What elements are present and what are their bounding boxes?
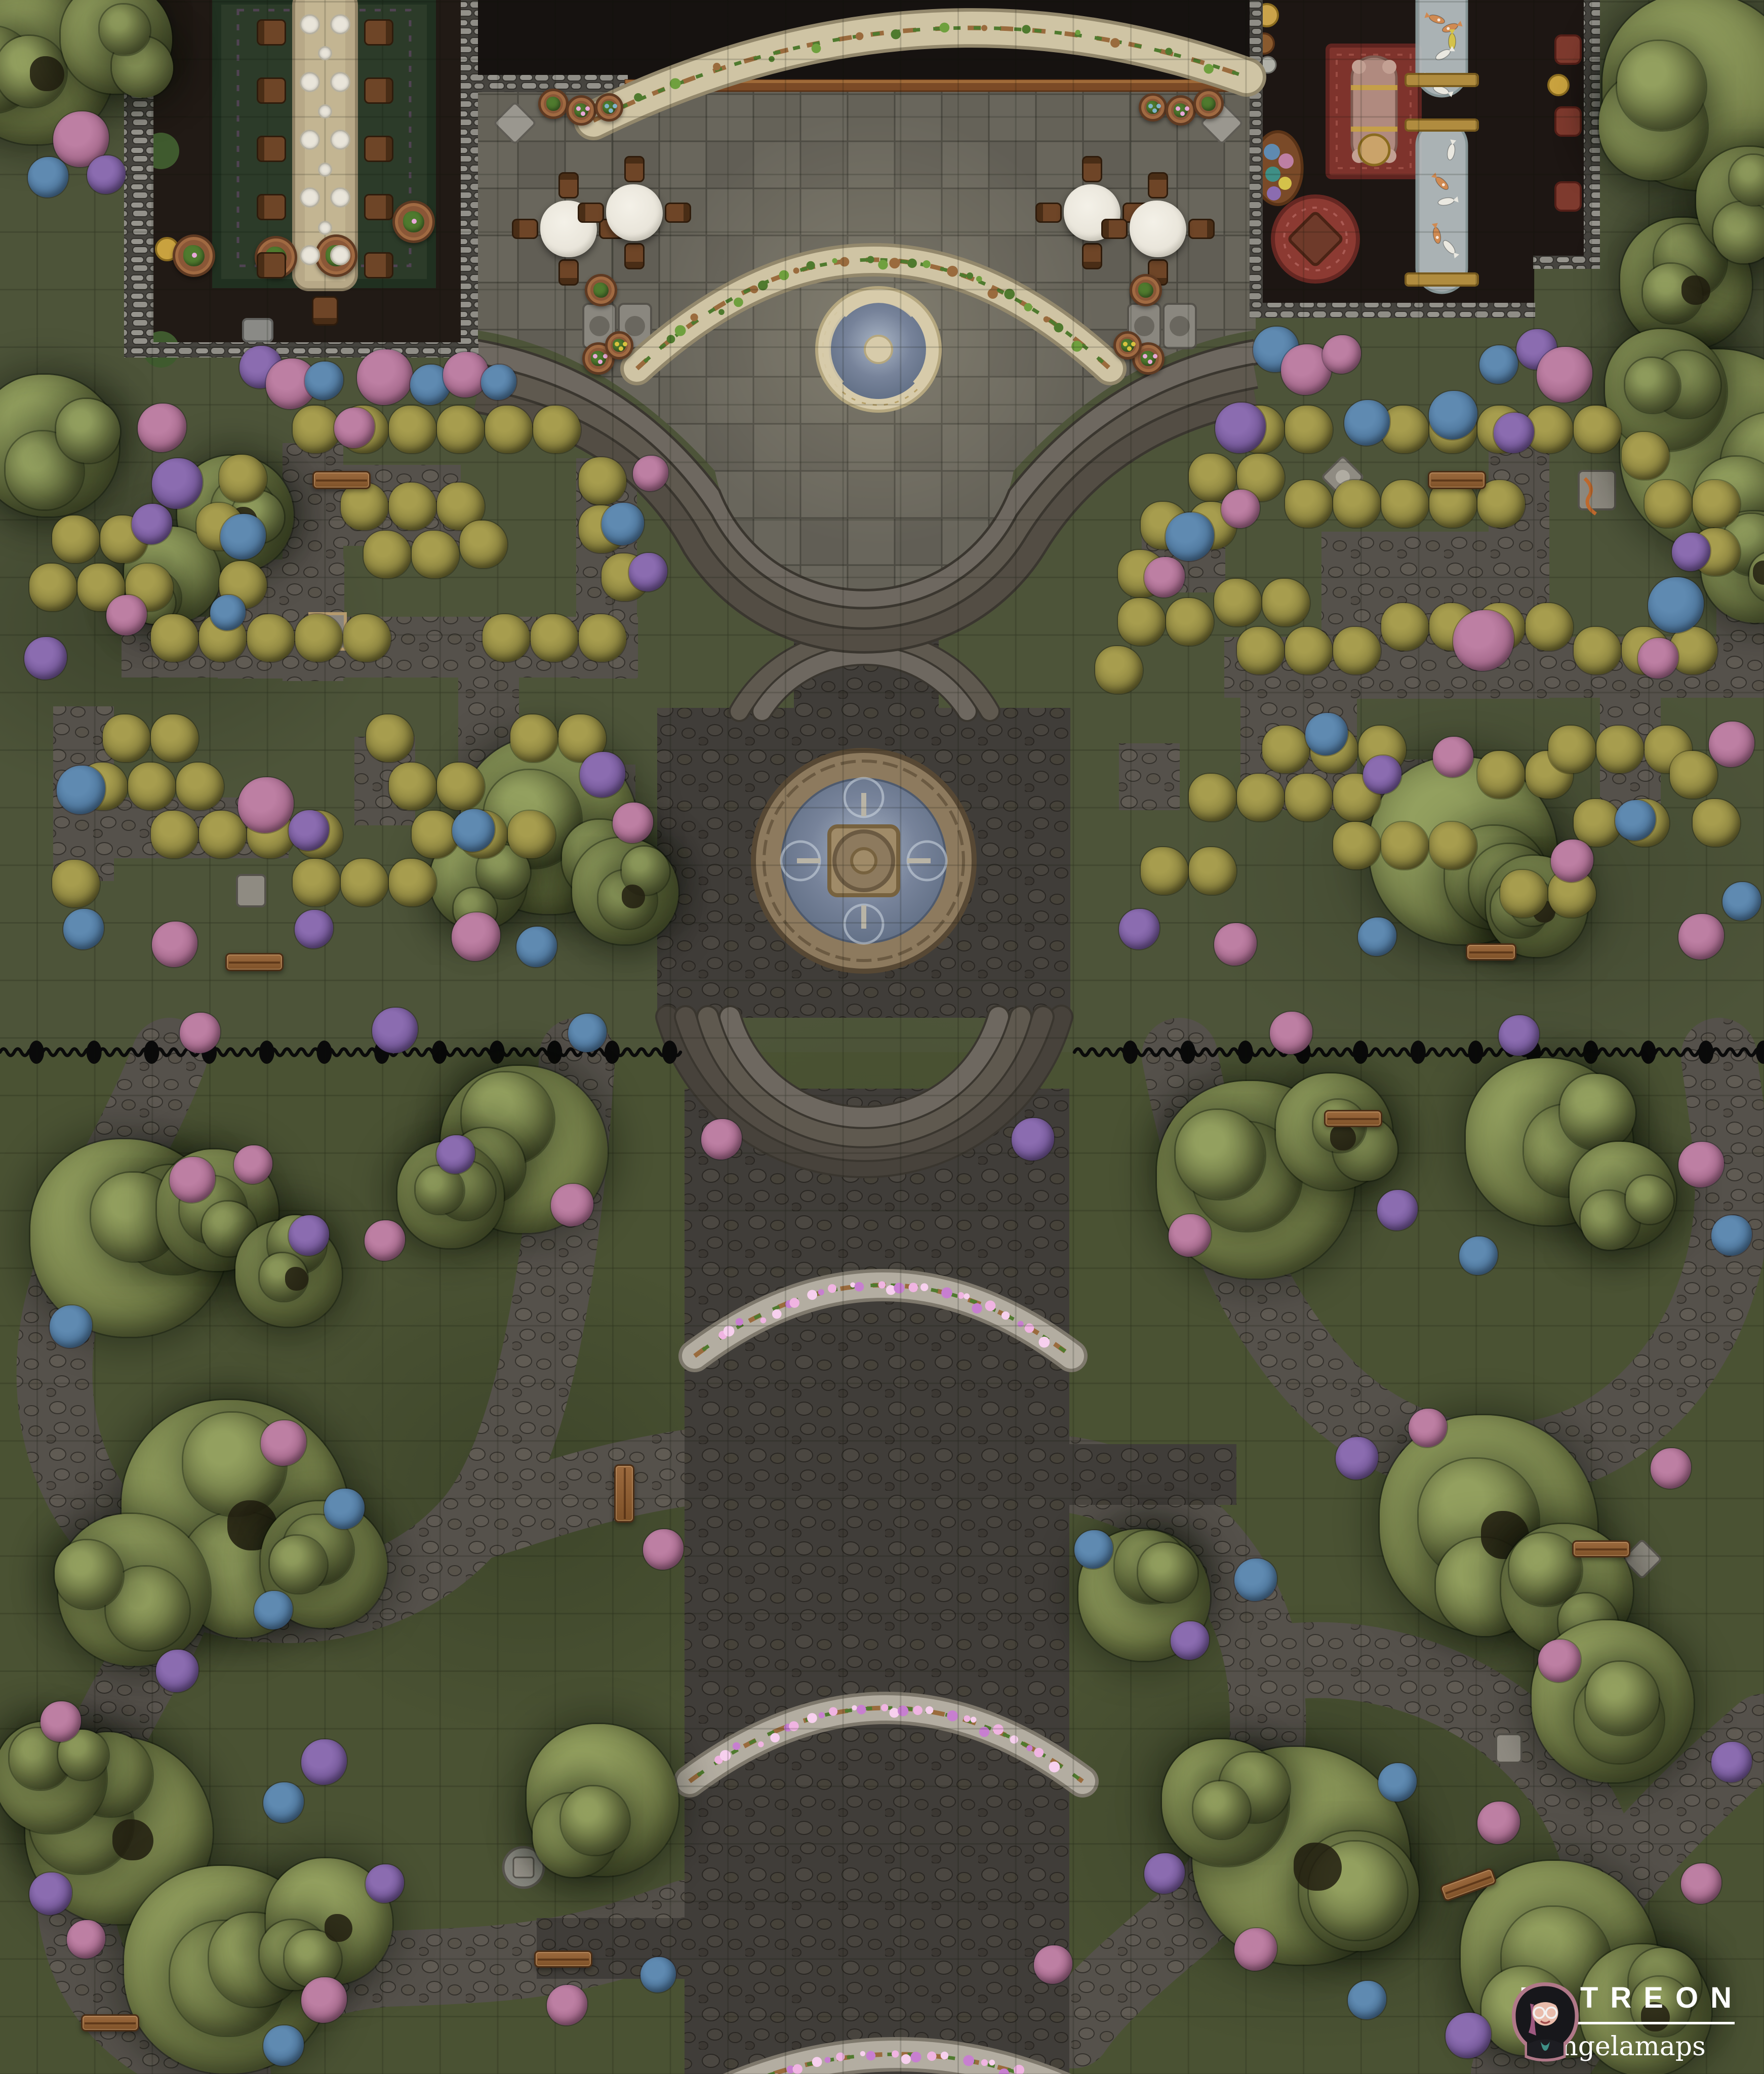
flower-bush-pink [152, 922, 197, 967]
hedge-shrub [1285, 480, 1333, 528]
flower-bush-pink [643, 1529, 684, 1570]
hedge-shrub [343, 614, 391, 662]
plate [300, 130, 320, 150]
room-planter [392, 201, 435, 243]
dining-chair [1148, 172, 1168, 198]
tree-hollow [285, 1267, 308, 1290]
flower-bush-pink [1681, 1863, 1721, 1904]
tree [1509, 1533, 1582, 1606]
hedge-shrub [1166, 598, 1214, 646]
flower-bush-blue [1234, 1559, 1277, 1601]
hedge-shrub [176, 763, 224, 810]
hedge-shrub [389, 483, 436, 530]
hedge-shrub [293, 859, 340, 906]
potted-plant-pink [1166, 95, 1196, 126]
hedge-shrub [508, 811, 555, 858]
hedge-shrub [437, 406, 485, 453]
flower-bush-purple [156, 1650, 198, 1692]
potted-plant-succulent [1139, 93, 1167, 122]
banquet-chair [257, 136, 286, 162]
hedge-shrub [1574, 406, 1621, 453]
hedge-shrub [1670, 751, 1717, 799]
banquet-chair [364, 252, 393, 278]
hedge-shrub [1596, 726, 1644, 773]
hedge-shrub [247, 614, 295, 662]
potted-plant-pink [566, 95, 596, 126]
flower-bush-blue [254, 1591, 293, 1629]
tree-hollow [622, 885, 645, 908]
room-planter [173, 234, 215, 277]
flower-bush-purple [372, 1008, 418, 1053]
hedge-shrub [52, 860, 100, 907]
hedge-shrub [1548, 726, 1596, 773]
flower-bush-pink [1221, 490, 1260, 528]
flower-bush-blue [1479, 345, 1518, 384]
serving-dish [318, 104, 332, 118]
flower-bush-purple [1336, 1437, 1378, 1480]
hedge-shrub [1189, 847, 1236, 895]
tree-hollow [1681, 275, 1710, 304]
hedge-shrub [1333, 822, 1381, 869]
flower-bush-blue [1358, 918, 1396, 956]
plate [300, 187, 320, 208]
dining-chair [1035, 203, 1062, 223]
flower-bush-purple [87, 155, 126, 194]
flower-bush-blue [50, 1305, 92, 1348]
dining-chair [1082, 243, 1102, 269]
potted-plant-leaf [585, 274, 617, 306]
tree [270, 1536, 327, 1593]
hedge-shrub [483, 614, 530, 662]
hedge-shrub [341, 483, 388, 530]
hedge-shrub [1429, 822, 1477, 869]
flower-bush-pink [1453, 610, 1514, 671]
flower-bush-purple [301, 1739, 347, 1785]
dining-chair [624, 243, 645, 269]
hedge-shrub [1693, 799, 1740, 847]
flower-bush-purple [1144, 1853, 1185, 1894]
flower-bush-blue [1722, 882, 1761, 921]
flower-bush-pink [1322, 335, 1361, 374]
hedge-shrub [1214, 579, 1262, 626]
flower-bush-blue [602, 503, 644, 545]
flower-bush-purple [1171, 1621, 1209, 1660]
hedge-shrub [1285, 406, 1333, 453]
dining-chair [1082, 156, 1102, 182]
potted-plant-leaf [1130, 274, 1162, 306]
flower-bush-pink [1477, 1802, 1520, 1844]
flower-bush-pink [357, 349, 413, 405]
hedge-shrub [1262, 726, 1310, 773]
hedge-shrub [1118, 598, 1166, 646]
tree-hollow [1330, 1125, 1356, 1150]
plate [330, 14, 350, 34]
banquet-chair [257, 194, 286, 220]
dining-chair [1101, 219, 1128, 239]
hedge-shrub [1477, 751, 1525, 799]
flower-bush-pink [613, 803, 653, 843]
hedge-shrub [1500, 870, 1548, 918]
tree [1176, 1110, 1265, 1199]
potted-plant-leaf [538, 89, 569, 119]
flower-bush-purple [1446, 2013, 1491, 2058]
hedge-shrub [52, 515, 100, 563]
flower-bush-pink [1638, 638, 1678, 679]
hedge-shrub [295, 614, 343, 662]
tree [55, 1540, 123, 1609]
tree [1138, 1543, 1197, 1602]
avatar [1507, 1981, 1583, 2063]
flower-bush-blue [1459, 1237, 1498, 1275]
flower-bush-pink [701, 1119, 742, 1160]
hedge-shrub [1645, 480, 1692, 528]
hedge-shrub [1381, 822, 1429, 869]
flower-bush-blue [568, 1014, 607, 1052]
tree [1617, 41, 1706, 130]
tree [561, 1786, 629, 1855]
banquet-chair [312, 296, 338, 326]
potted-plant-yellow [1113, 331, 1142, 360]
flower-bush-purple [629, 553, 667, 591]
dining-chair [624, 156, 645, 182]
flower-bush-pink [1709, 722, 1754, 767]
hedge-shrub [485, 406, 533, 453]
flower-bush-pink [1034, 1945, 1072, 1984]
flower-bush-purple [24, 637, 67, 680]
flower-bush-purple [295, 910, 333, 948]
flower-bush-pink [1270, 1012, 1312, 1054]
hedge-shrub [1189, 774, 1236, 821]
banquet-chair [257, 19, 286, 46]
round-table [1130, 201, 1186, 257]
tree [1626, 1176, 1674, 1224]
hedge-shrub [1526, 603, 1573, 651]
tree [1193, 1781, 1251, 1839]
tree [1560, 1074, 1635, 1149]
flower-bush-pink [443, 352, 489, 397]
flower-bush-pink [1678, 914, 1724, 960]
hedge-shrub [1095, 646, 1143, 694]
flower-bush-pink [547, 1985, 587, 2025]
flower-bush-blue [1348, 1981, 1386, 2019]
flower-bush-blue [481, 365, 516, 400]
bench [225, 953, 284, 971]
hedge-shrub [364, 531, 411, 578]
flower-bush-pink [452, 912, 500, 961]
bench [1428, 471, 1486, 489]
flower-bush-pink [1234, 1928, 1277, 1971]
flower-bush-purple [1711, 1742, 1752, 1782]
plate [330, 130, 350, 150]
flower-bush-blue [263, 1782, 304, 1823]
sprites-layer [0, 0, 1764, 2074]
hedge-shrub [1574, 627, 1621, 674]
flower-bush-pink [633, 456, 668, 491]
plate [330, 245, 350, 265]
dining-chair [578, 203, 604, 223]
plate [330, 72, 350, 92]
banquet-chair [364, 19, 393, 46]
flower-bush-blue [263, 2025, 304, 2066]
hedge-shrub [579, 614, 626, 662]
flower-bush-blue [1378, 1763, 1417, 1802]
hedge-shrub [531, 614, 578, 662]
hedge-shrub [151, 714, 198, 762]
flower-bush-pink [1651, 1448, 1691, 1489]
hedge-shrub [579, 457, 626, 505]
hedge-shrub [29, 564, 77, 611]
plate [330, 187, 350, 208]
flower-bush-pink [1537, 347, 1592, 403]
dining-chair [558, 259, 579, 286]
plate [300, 14, 320, 34]
serving-dish [318, 221, 332, 235]
flower-bush-blue [1711, 1215, 1752, 1256]
banquet-chair [364, 136, 393, 162]
garden-battle-map: PATREON angelamaps [0, 0, 1764, 2074]
tree-hollow [30, 56, 64, 91]
tree-hollow [325, 1914, 352, 1942]
hedge-shrub [128, 763, 176, 810]
hedge-shrub [389, 406, 436, 453]
tree [1586, 1662, 1659, 1735]
hedge-shrub [1141, 847, 1188, 895]
hedge-shrub [103, 714, 150, 762]
hedge-shrub [1574, 799, 1621, 847]
flower-bush-purple [1494, 413, 1534, 453]
hedge-shrub [199, 811, 247, 858]
flower-bush-pink [301, 1977, 347, 2023]
flower-bush-blue [305, 362, 343, 400]
dining-chair [512, 219, 538, 239]
flower-bush-blue [1166, 512, 1214, 561]
serving-dish [318, 163, 332, 177]
hedge-shrub [1333, 627, 1381, 674]
banquet-chair [364, 77, 393, 104]
hedge-shrub [366, 714, 414, 762]
flower-bush-pink [365, 1220, 405, 1261]
potted-plant-leaf [1193, 89, 1224, 119]
watermark-badge: PATREON angelamaps [1507, 1981, 1744, 2062]
banquet-chair [257, 252, 286, 278]
plate [300, 245, 320, 265]
hedge-shrub [1381, 480, 1429, 528]
hedge-shrub [341, 859, 388, 906]
plate [300, 72, 320, 92]
hedge-shrub [1262, 579, 1310, 626]
hedge-shrub [293, 406, 340, 453]
hedge-shrub [389, 763, 436, 810]
flower-bush-blue [516, 927, 557, 967]
serving-dish [318, 46, 332, 60]
flower-bush-blue [640, 1957, 676, 1992]
dining-chair [558, 172, 579, 198]
dining-chair [1188, 219, 1215, 239]
hedge-shrub [1693, 480, 1740, 528]
tree-hollow [1294, 1843, 1342, 1891]
flower-bush-purple [1012, 1118, 1054, 1161]
flower-bush-purple [1377, 1190, 1418, 1230]
flower-bush-pink [1678, 1142, 1724, 1187]
bench [1572, 1540, 1630, 1558]
hedge-shrub [151, 811, 198, 858]
flower-bush-pink [67, 1920, 105, 1959]
tree [56, 399, 120, 463]
hedge-shrub [460, 521, 507, 568]
hedge-shrub [1237, 627, 1285, 674]
bench [614, 1464, 634, 1523]
hedge-shrub [389, 859, 436, 906]
hedge-shrub [219, 455, 267, 502]
banquet-chair [364, 194, 393, 220]
hedge-shrub [412, 531, 459, 578]
flower-bush-blue [1648, 577, 1704, 633]
potted-plant-yellow [605, 331, 633, 360]
hedge-shrub [1381, 603, 1429, 651]
bench [312, 471, 371, 489]
flower-bush-purple [1499, 1015, 1539, 1056]
flower-bush-pink [138, 404, 186, 452]
hedge-shrub [151, 614, 198, 662]
flower-bush-pink [1214, 923, 1257, 966]
hedge-shrub [533, 406, 581, 453]
hedge-shrub [1237, 774, 1285, 821]
flower-bush-pink [106, 595, 147, 635]
hedge-shrub [1333, 480, 1381, 528]
hedge-shrub [510, 714, 558, 762]
flower-bush-pink [180, 1013, 220, 1053]
flower-bush-pink [1144, 557, 1185, 597]
round-table [606, 184, 663, 241]
hedge-shrub [1285, 627, 1333, 674]
hedge-shrub [1285, 774, 1333, 821]
bench [81, 2014, 139, 2031]
flower-bush-blue [28, 157, 68, 197]
flower-bush-purple [366, 1864, 404, 1903]
bench [1466, 943, 1516, 961]
banquet-chair [257, 77, 286, 104]
tree [100, 5, 150, 55]
flower-bush-pink [551, 1184, 593, 1226]
hedge-shrub [437, 763, 485, 810]
flower-bush-blue [63, 909, 104, 949]
bench [534, 1950, 592, 1968]
potted-plant-succulent [595, 93, 623, 122]
dining-chair [665, 203, 691, 223]
bench [1324, 1110, 1382, 1127]
flower-bush-purple [1119, 909, 1159, 949]
hedge-shrub [1622, 432, 1669, 480]
